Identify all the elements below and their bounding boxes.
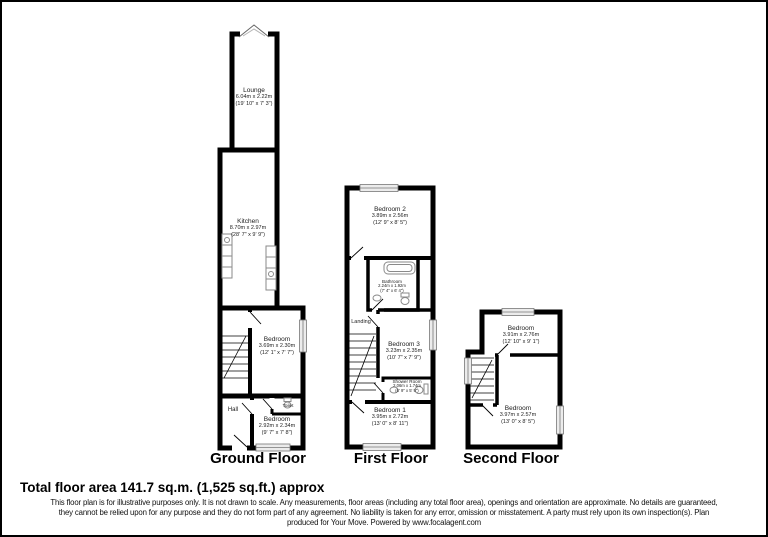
window-gf-bedroom-right [300,320,307,352]
room-label-bedroom2: Bedroom 2 3.89m x 2.56m (12' 9" x 8' 5") [372,206,408,226]
room-imperial: (13' 0" x 8' 5") [500,419,536,425]
disclaimer-line-2: they cannot be relied upon for any purpo… [0,508,768,517]
room-metric: 8.70m x 2.97m [230,225,266,231]
room-name: Landing [351,319,371,325]
room-name: Kitchen [230,218,266,225]
room-metric: 3.91m x 2.76m [503,332,540,338]
toilet-fixture [401,293,409,305]
window-sf-top [502,309,534,316]
window-sf-right [557,406,564,434]
room-metric: 3.95m x 2.72m [372,414,408,420]
room-label-bedroom-mid: Bedroom 3.69m x 2.30m (12' 1" x 7' 7") [259,336,295,356]
window-ff-right [430,320,437,350]
room-name: Bedroom [259,336,295,343]
first-floor-title: First Floor [354,450,428,467]
room-imperial: (10' 7" x 7' 9") [386,355,422,361]
window-ff-top [360,185,398,192]
room-metric: 6.04m x 2.22m [236,94,273,100]
room-name: Bedroom [503,325,540,332]
disclaimer-line-3: produced for Your Move. Powered by www.f… [0,518,768,527]
room-name: Bedroom 2 [372,206,408,213]
room-imperial: (12' 9" x 8' 5") [372,220,408,226]
room-imperial: (7' 4" x 6' 4") [378,289,406,294]
total-floor-area: Total floor area 141.7 sq.m. (1,525 sq.f… [20,480,324,495]
room-label-shower: Shower Room 2.06m x 1.74m (6' 9" x 5' 9"… [392,379,421,394]
room-label-landing: Landing [351,319,371,325]
room-label-toilet: Toilet [283,403,294,408]
disclaimer-line-1: This floor plan is for illustrative purp… [0,498,768,507]
room-label-bedroom1: Bedroom 1 3.95m x 2.72m (13' 0" x 8' 11"… [372,407,408,427]
kitchen-counter-left [222,234,232,278]
room-name: Bedroom 3 [386,341,422,348]
room-name: Bedroom 1 [372,407,408,414]
room-label-kitchen: Kitchen 8.70m x 2.97m (28' 7" x 9' 9") [230,218,266,238]
room-metric: 3.97m x 2.57m [500,412,536,418]
window-sf-left [465,358,472,384]
room-label-lounge: Lounge 6.04m x 2.22m (19' 10" x 7' 3") [236,87,273,107]
room-label-sf-bedroom-top: Bedroom 3.91m x 2.76m (12' 10" x 9' 1") [503,325,540,345]
room-imperial: (9' 7" x 7' 8") [259,430,295,436]
room-imperial: (6' 9" x 5' 9") [392,389,421,394]
room-imperial: (12' 10" x 9' 1") [503,339,540,345]
room-imperial: (12' 1" x 7' 7") [259,350,295,356]
sink-icon [373,295,381,301]
room-name: Hall [228,407,238,414]
kitchen-counter-right [266,246,276,290]
room-imperial: (13' 0" x 8' 11") [372,421,408,427]
room-label-bathroom: Bathroom 2.24m x 1.92m (7' 4" x 6' 4") [378,279,406,294]
room-name: Lounge [236,87,273,94]
room-name: Bedroom [500,405,536,412]
room-label-hall: Hall [228,407,238,414]
room-label-bedroom3: Bedroom 3 3.23m x 2.35m (10' 7" x 7' 9") [386,341,422,361]
room-name: Bedroom [259,416,295,423]
room-label-sf-bedroom-bottom: Bedroom 3.97m x 2.57m (13' 0" x 8' 5") [500,405,536,425]
room-imperial: (28' 7" x 9' 9") [230,232,266,238]
room-label-bedroom-bottom: Bedroom 2.92m x 2.34m (9' 7" x 7' 8") [259,416,295,436]
ground-floor-title: Ground Floor [210,450,306,467]
room-imperial: (19' 10" x 7' 3") [236,101,273,107]
floorplan-page: Lounge 6.04m x 2.22m (19' 10" x 7' 3") K… [0,0,768,537]
second-floor-title: Second Floor [463,450,559,467]
bath-fixture [384,262,415,274]
room-metric: 3.23m x 2.35m [386,348,422,354]
room-name: Toilet [283,403,294,408]
room-metric: 3.89m x 2.56m [372,213,408,219]
room-metric: 3.69m x 2.30m [259,343,295,349]
room-metric: 2.92m x 2.34m [259,423,295,429]
